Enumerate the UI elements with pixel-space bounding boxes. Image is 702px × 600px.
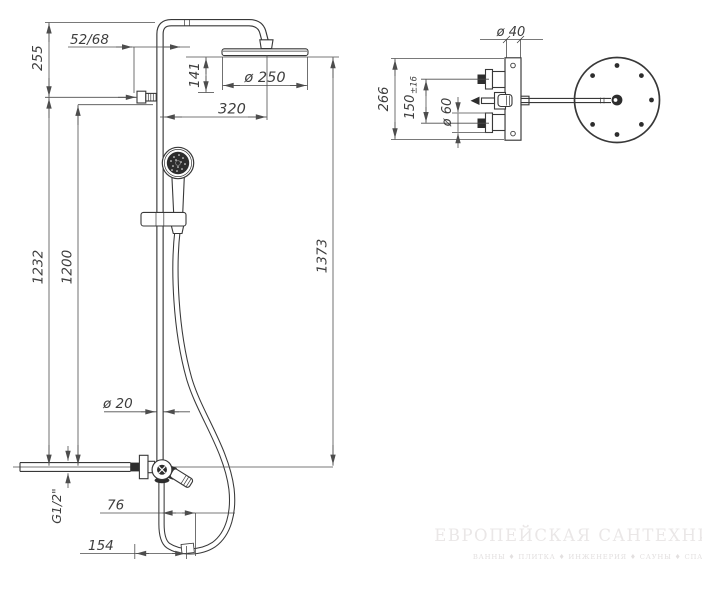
dim-column-diameter: ø 40 [496,25,526,40]
shower-system-drawing: 255 52/68 1232 1200 13 [0,0,702,600]
dim-total-height: 1373 [315,239,331,273]
head-connector-nut [260,40,273,49]
dim-escutcheon-diameter: ø 60 [440,98,455,128]
dim-bracket-offset: 52/68 [70,32,109,48]
front-view: 255 52/68 1232 1200 13 [13,20,339,559]
dim-inlet-tolerance: ±16 [410,75,420,94]
inlet-and-valve [13,455,333,490]
watermark-subtitle: ВАННЫ ♦ ПЛИТКА ♦ ИНЖЕНЕРИЯ ♦ САУНЫ ♦ СПА [473,553,702,561]
dim-top-offset: 255 [30,45,46,71]
flow-arrow [471,97,480,105]
screw-hole-bottom [511,131,516,136]
dim-arm-reach: 320 [218,102,246,118]
hose-nut [171,226,183,234]
watermark-title: ЕВРОПЕЙСКАЯ САНТЕХНИКА [434,525,702,545]
hand-shower [162,147,193,214]
dim-inlet-spacing: 150 [403,95,418,120]
technical-drawing-page: 255 52/68 1232 1200 13 [0,0,702,600]
dim-inlet-thread: G1/2" [49,488,64,524]
dim-slide-height: 1200 [60,250,76,284]
shower-hose [162,230,233,554]
mixer-body [471,93,513,110]
overhead-head-top-view [521,58,660,143]
dim-head-diameter: ø 250 [243,70,285,86]
hand-shower-face [167,152,189,174]
flange [139,455,148,478]
dim-pipe-diameter: ø 20 [102,396,133,412]
dim-base-width: 154 [88,538,114,554]
hose-connector [181,543,194,554]
dim-rail-height: 1232 [31,250,47,284]
overhead-shower-head [222,40,308,56]
dim-plate-height: 266 [377,87,392,112]
dim-hose-offset: 76 [107,498,124,514]
top-view: ø 40 266 150 ±16 ø 60 [377,25,660,148]
wall-nut [130,463,139,472]
screw-hole-top [511,63,516,68]
dim-head-drop: 141 [187,62,203,88]
watermark: ЕВРОПЕЙСКАЯ САНТЕХНИКА ВАННЫ ♦ ПЛИТКА ♦ … [434,525,702,561]
upper-wall-bracket [137,91,156,103]
